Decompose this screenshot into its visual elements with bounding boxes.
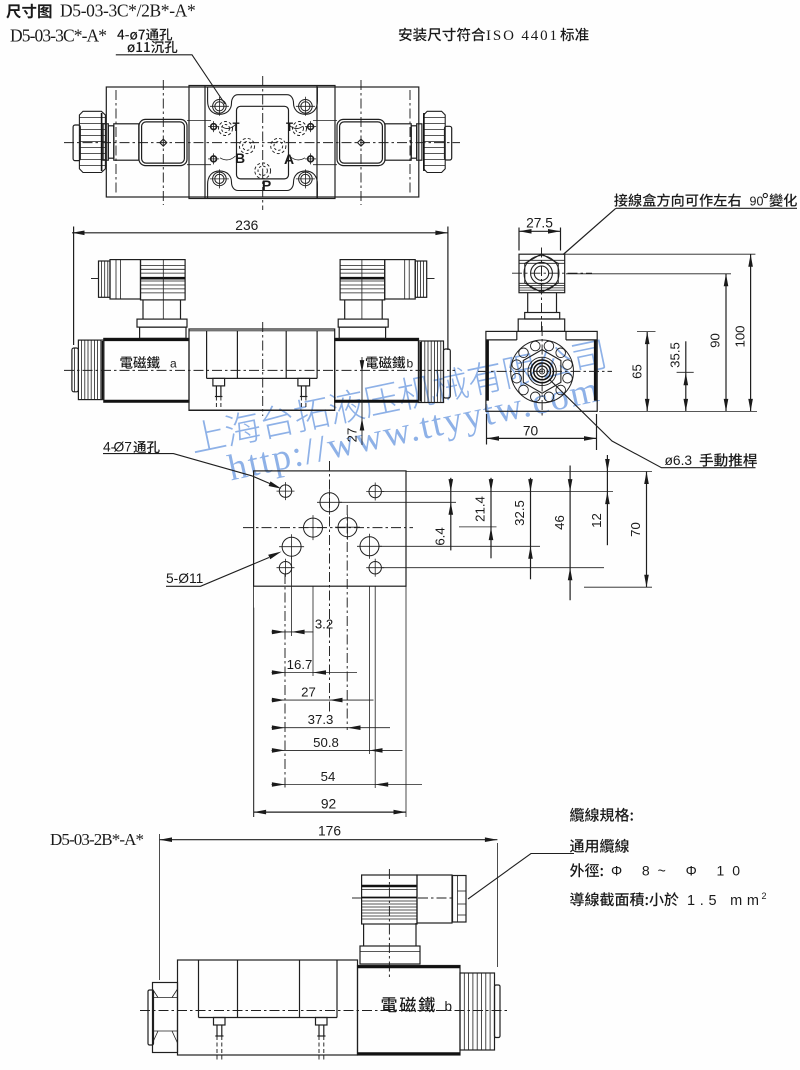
svg-text:27: 27 [345,428,360,443]
svg-text:P: P [262,177,271,193]
svg-text:90: 90 [750,195,764,209]
svg-text:D5-03-3C*/2B*-A*: D5-03-3C*/2B*-A* [60,1,195,21]
svg-text:Ø7: Ø7 [114,440,132,455]
svg-text:5-Ø11: 5-Ø11 [166,571,203,586]
svg-text:a: a [170,357,177,371]
svg-text:27.5: 27.5 [526,216,553,231]
svg-text:46: 46 [552,515,567,530]
svg-text:37.3: 37.3 [308,712,334,727]
svg-text:T: T [286,122,293,134]
svg-text:70: 70 [523,424,539,439]
svg-text:b: b [407,357,414,371]
svg-text:90: 90 [708,333,723,348]
svg-text:65: 65 [630,364,645,379]
svg-text:3.2: 3.2 [315,616,333,631]
svg-text:92: 92 [321,797,336,812]
svg-text:35.5: 35.5 [668,342,683,368]
svg-text:16.7: 16.7 [287,657,313,672]
svg-text:A: A [284,151,294,167]
svg-text:70: 70 [628,522,643,537]
svg-text:Φ 8~ Φ 10: Φ 8~ Φ 10 [611,863,740,879]
svg-text:2: 2 [762,891,767,901]
svg-text:27: 27 [301,685,316,700]
svg-text:ISO 4401: ISO 4401 [486,28,557,44]
svg-text:176: 176 [318,824,341,839]
svg-text:100: 100 [733,325,748,347]
svg-text:B: B [235,150,245,166]
svg-text:D5-03-3C*-A*: D5-03-3C*-A* [10,26,106,46]
svg-text:D5-03-2B*-A*: D5-03-2B*-A* [50,830,143,849]
svg-text:6.4: 6.4 [432,527,447,545]
svg-text:21.4: 21.4 [472,496,487,522]
svg-text:32.5: 32.5 [512,500,527,526]
svg-text:50.8: 50.8 [313,735,339,750]
svg-text:ø6.3: ø6.3 [665,453,693,468]
svg-text:12: 12 [589,513,604,528]
svg-text:b: b [445,999,453,1014]
svg-text:236: 236 [235,218,258,233]
svg-text:T: T [232,122,239,134]
svg-text:54: 54 [321,769,336,784]
